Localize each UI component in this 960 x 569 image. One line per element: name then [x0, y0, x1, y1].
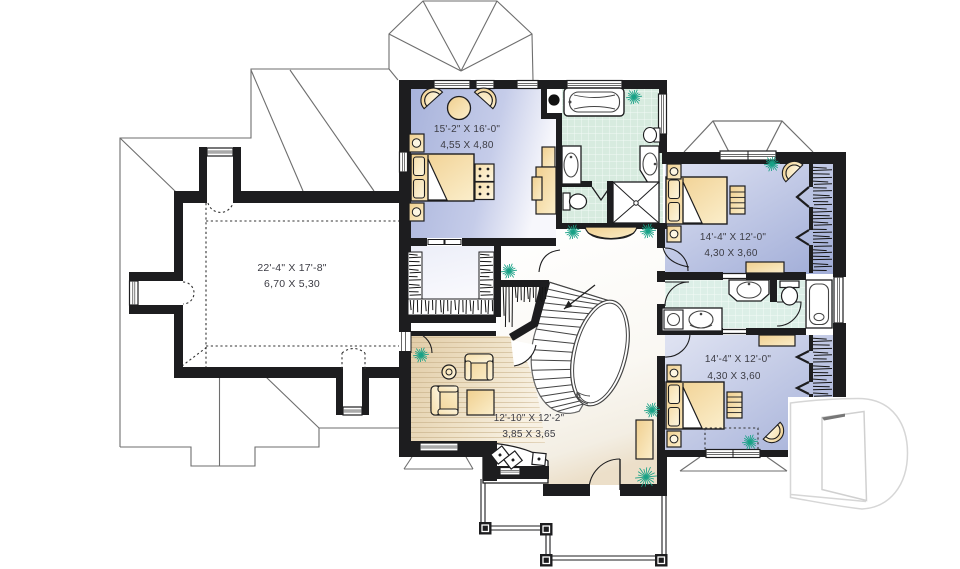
svg-text:14'-4" X 12'-0": 14'-4" X 12'-0" [700, 232, 766, 243]
svg-text:22'-4" X 17'-8": 22'-4" X 17'-8" [257, 262, 326, 274]
svg-text:4,55 X 4,80: 4,55 X 4,80 [440, 140, 494, 151]
svg-text:4,30 X 3,60: 4,30 X 3,60 [704, 248, 758, 259]
svg-text:15'-2" X 16'-0": 15'-2" X 16'-0" [434, 124, 500, 135]
svg-text:12'-10" X 12'-2": 12'-10" X 12'-2" [494, 413, 565, 424]
svg-text:14'-4" X 12'-0": 14'-4" X 12'-0" [705, 354, 771, 365]
svg-text:4,30 X 3,60: 4,30 X 3,60 [707, 371, 761, 382]
svg-text:3,85 X 3,65: 3,85 X 3,65 [502, 429, 556, 440]
svg-text:6,70 X 5,30: 6,70 X 5,30 [264, 278, 320, 290]
